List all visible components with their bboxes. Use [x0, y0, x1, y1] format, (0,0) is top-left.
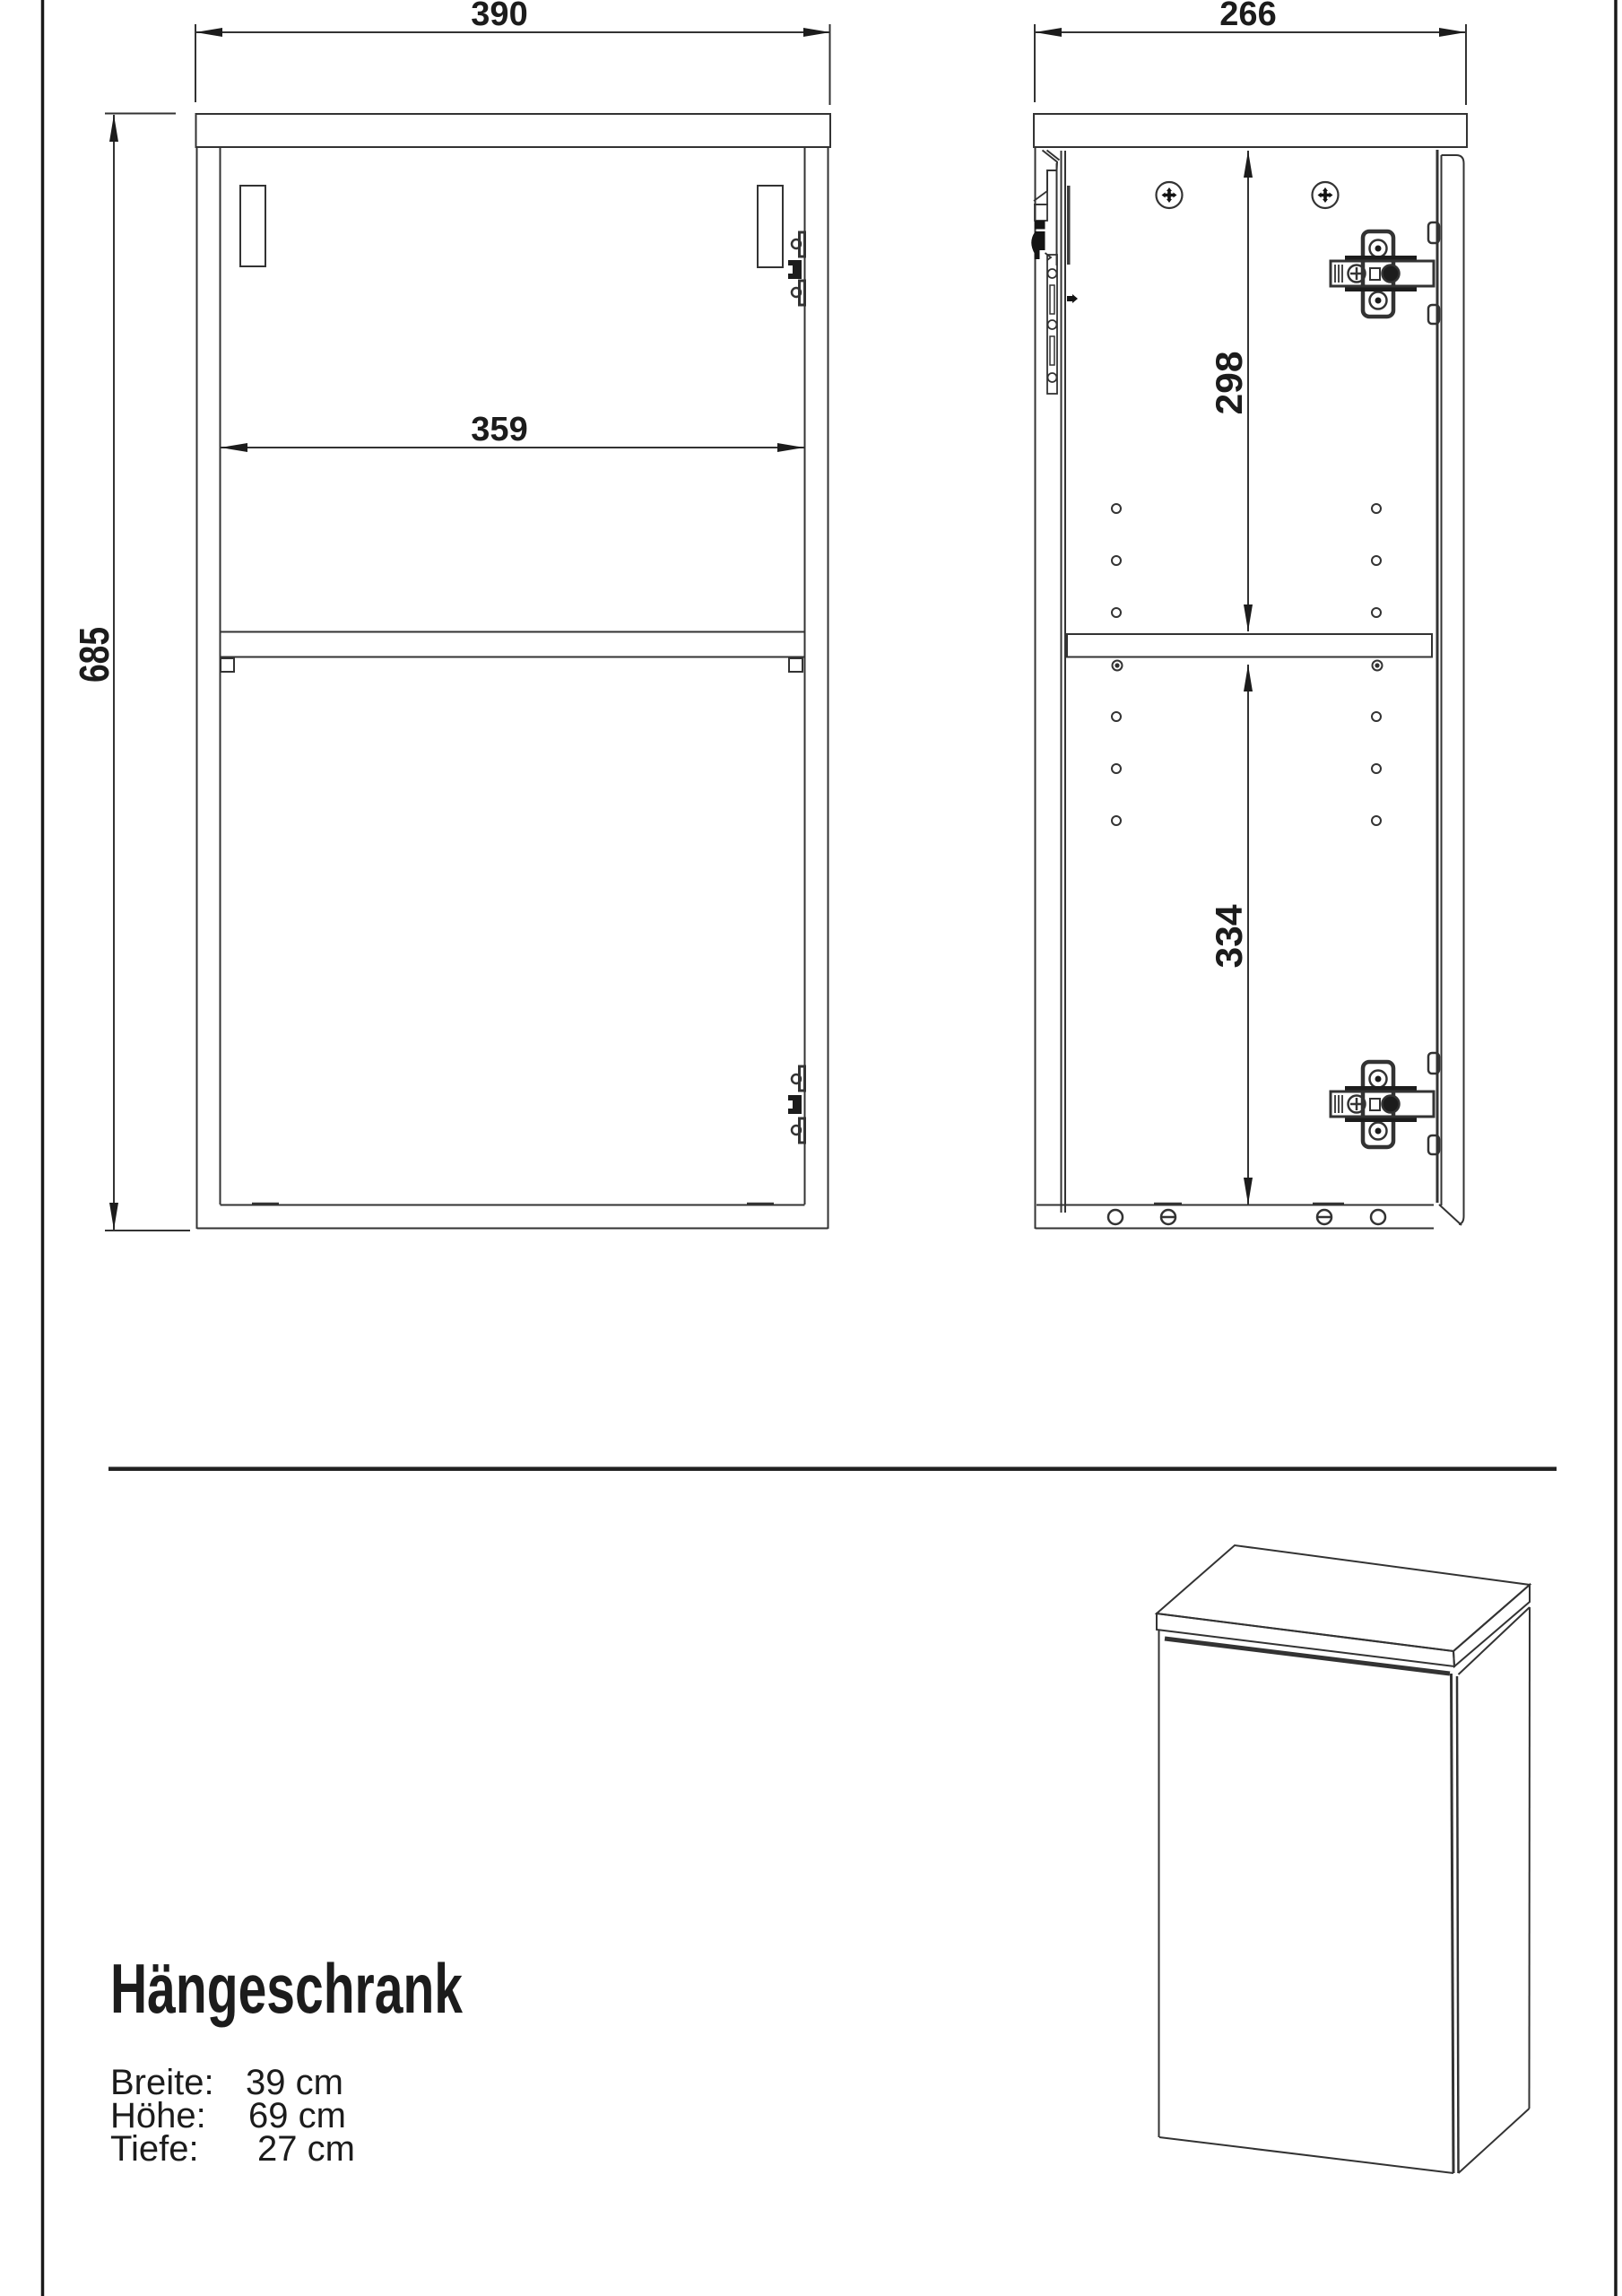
svg-text:334: 334: [1208, 904, 1250, 969]
svg-text:298: 298: [1208, 352, 1250, 415]
svg-text:27 cm: 27 cm: [257, 2129, 355, 2169]
svg-text:390: 390: [471, 0, 527, 33]
svg-text:Hängeschrank: Hängeschrank: [110, 1949, 463, 2028]
svg-text:359: 359: [471, 411, 527, 448]
svg-text:Tiefe:: Tiefe:: [110, 2129, 199, 2169]
svg-text:685: 685: [71, 627, 117, 683]
svg-text:266: 266: [1219, 0, 1276, 33]
